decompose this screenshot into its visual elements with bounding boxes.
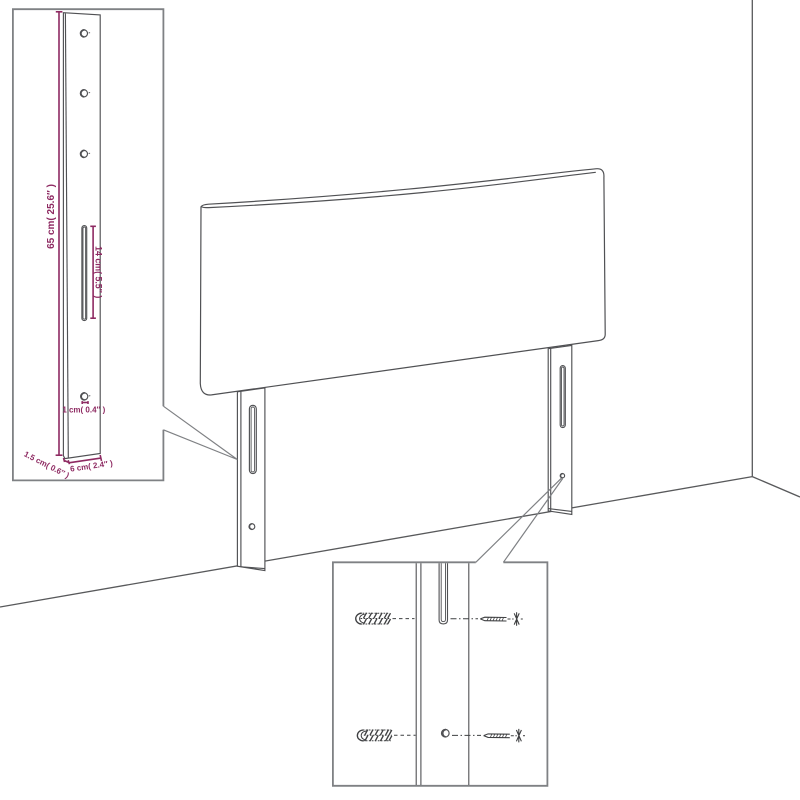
- svg-text:1 cm( 0.4″ ): 1 cm( 0.4″ ): [62, 406, 105, 415]
- svg-text:14 cm( 5.5″ ): 14 cm( 5.5″ ): [93, 246, 103, 298]
- svg-text:65 cm( 25.6″ ): 65 cm( 25.6″ ): [46, 184, 57, 249]
